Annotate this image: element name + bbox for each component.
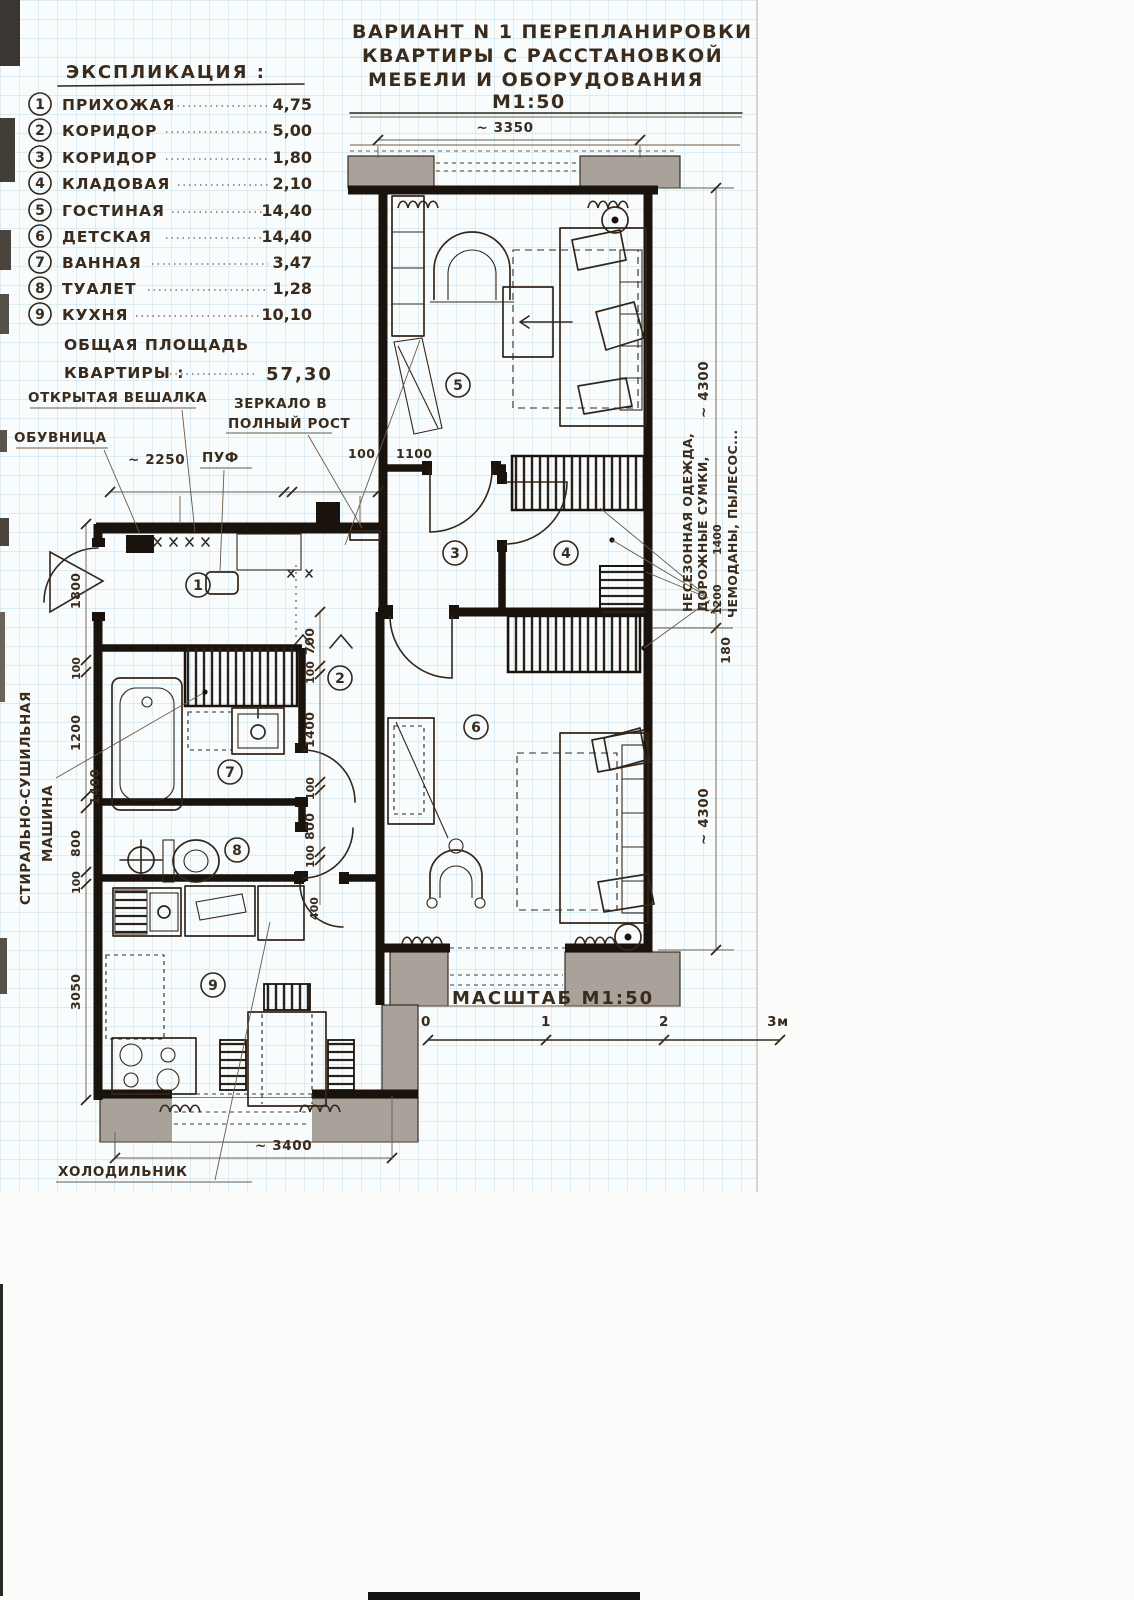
svg-text:100: 100 — [70, 871, 83, 894]
legend-num-7: 7 — [35, 255, 45, 271]
svg-text:4: 4 — [561, 546, 571, 562]
wardrobe-room6 — [508, 616, 640, 672]
chair — [220, 1040, 246, 1090]
legend-num-4: 4 — [35, 176, 45, 192]
legend-num-2: 2 — [35, 123, 45, 139]
stool — [264, 984, 310, 1010]
shoe-cabinet-box — [126, 535, 154, 553]
legend-value-4: 2,10 — [273, 174, 312, 193]
legend-name-7: ВАННАЯ — [62, 254, 142, 272]
legend-total-value: 57,30 — [266, 364, 333, 385]
legend-value-1: 4,75 — [273, 95, 312, 114]
svg-text:МАШИНА: МАШИНА — [40, 785, 56, 862]
dim-hall-1100: 1100 — [396, 446, 432, 461]
dim-hall-100: 100 — [348, 446, 375, 461]
svg-text:НЕСЕЗОННАЯ ОДЕЖДА,: НЕСЕЗОННАЯ ОДЕЖДА, — [680, 433, 695, 612]
svg-text:ПОЛНЫЙ РОСТ: ПОЛНЫЙ РОСТ — [228, 415, 351, 432]
legend-value-5: 14,40 — [261, 201, 312, 220]
svg-text:1800: 1800 — [68, 573, 83, 609]
legend-value-9: 10,10 — [261, 305, 312, 324]
svg-text:800: 800 — [302, 813, 317, 840]
legend-num-5: 5 — [35, 203, 45, 219]
legend-num-8: 8 — [35, 281, 45, 297]
storage-rack-side — [600, 566, 646, 616]
legend-name-2: КОРИДОР — [62, 122, 158, 140]
svg-text:ЧЕМОДАНЫ, ПЫЛЕСОС...: ЧЕМОДАНЫ, ПЫЛЕСОС... — [725, 429, 740, 618]
legend-num-1: 1 — [35, 97, 45, 113]
svg-text:5: 5 — [453, 378, 463, 394]
legend-name-5: ГОСТИНАЯ — [62, 202, 165, 220]
legend-name-8: ТУАЛЕТ — [62, 280, 137, 298]
svg-text:1: 1 — [193, 578, 203, 594]
legend-name-3: КОРИДОР — [62, 149, 158, 167]
svg-text:3: 3 — [450, 546, 460, 562]
svg-text:8: 8 — [232, 843, 242, 859]
svg-text:2: 2 — [335, 671, 345, 687]
storage-rack-top — [512, 456, 644, 510]
legend-name-9: КУХНЯ — [62, 306, 128, 324]
svg-text:7: 7 — [225, 765, 235, 781]
scale-tick-2: 2 — [659, 1014, 669, 1030]
svg-text:ХОЛОДИЛЬНИК: ХОЛОДИЛЬНИК — [58, 1164, 188, 1180]
svg-text:ОБУВНИЦА: ОБУВНИЦА — [14, 430, 107, 446]
dim-right-bottom: ~ 4300 — [696, 788, 712, 845]
svg-text:ПУФ: ПУФ — [202, 450, 239, 466]
svg-text:100: 100 — [304, 777, 317, 800]
legend-total-label-2: КВАРТИРЫ : — [64, 364, 184, 382]
legend-value-3: 1,80 — [273, 148, 312, 167]
dim-right-top: ~ 4300 — [696, 361, 712, 418]
title-line-4: М1:50 — [492, 91, 566, 113]
svg-text:3050: 3050 — [68, 974, 83, 1010]
svg-text:ЗЕРКАЛО В: ЗЕРКАЛО В — [234, 396, 327, 412]
legend-num-6: 6 — [35, 229, 45, 245]
svg-text:1400: 1400 — [302, 712, 317, 748]
svg-text:100: 100 — [304, 661, 317, 684]
dim-closet-1400: 1400 — [711, 524, 724, 555]
chair — [328, 1040, 354, 1090]
scanned-floor-plan-page: ЭКСПЛИКАЦИЯ : 1 ПРИХОЖАЯ 4,75 2 КОРИДОР … — [0, 0, 1134, 1600]
scale-tick-1: 1 — [541, 1014, 551, 1030]
legend-value-8: 1,28 — [273, 279, 312, 298]
legend-name-4: КЛАДОВАЯ — [62, 175, 170, 193]
title-line-3: МЕБЕЛИ И ОБОРУДОВАНИЯ — [368, 69, 704, 91]
dim-closet-1200: 1200 — [711, 584, 724, 615]
dim-hall-width: ~ 2250 — [128, 452, 185, 468]
svg-text:1200: 1200 — [68, 715, 83, 751]
legend-value-2: 5,00 — [273, 121, 312, 140]
svg-text:ДОРОЖНЫЕ СУМКИ,: ДОРОЖНЫЕ СУМКИ, — [695, 456, 710, 612]
svg-text:ОТКРЫТАЯ ВЕШАЛКА: ОТКРЫТАЯ ВЕШАЛКА — [28, 390, 207, 406]
svg-text:800: 800 — [68, 830, 83, 857]
legend-value-7: 3,47 — [273, 253, 312, 272]
svg-text:1400: 1400 — [87, 769, 102, 805]
svg-text:700: 700 — [302, 628, 317, 655]
title-line-2: КВАРТИРЫ С РАССТАНОВКОЙ — [362, 44, 723, 67]
svg-text:9: 9 — [208, 978, 218, 994]
svg-text:СТИРАЛЬНО-СУШИЛЬНАЯ: СТИРАЛЬНО-СУШИЛЬНАЯ — [18, 691, 34, 905]
legend-num-9: 9 — [35, 307, 45, 323]
svg-text:~ 3400: ~ 3400 — [255, 1138, 312, 1154]
washer-dryer — [185, 646, 297, 706]
scale-label: МАСШТАБ М1:50 — [452, 988, 654, 1009]
svg-text:6: 6 — [471, 720, 481, 736]
legend-name-6: ДЕТСКАЯ — [62, 228, 152, 246]
legend-total-label-1: ОБЩАЯ ПЛОЩАДЬ — [64, 336, 249, 354]
title-line-1: ВАРИАНТ N 1 ПЕРЕПЛАНИРОВКИ — [352, 21, 753, 43]
legend-name-1: ПРИХОЖАЯ — [62, 96, 175, 114]
svg-text:~ 3350: ~ 3350 — [476, 120, 533, 136]
svg-text:100: 100 — [70, 657, 83, 680]
scale-tick-3: 3м — [767, 1014, 789, 1030]
scale-tick-0: 0 — [421, 1014, 431, 1030]
dim-kitchen-door: 400 — [308, 897, 321, 920]
legend-value-6: 14,40 — [261, 227, 312, 246]
svg-text:100: 100 — [304, 845, 317, 868]
legend-num-3: 3 — [35, 150, 45, 166]
wall-pier — [316, 502, 340, 528]
dim-right-step: 180 — [718, 637, 733, 664]
legend-header: ЭКСПЛИКАЦИЯ : — [66, 62, 266, 83]
